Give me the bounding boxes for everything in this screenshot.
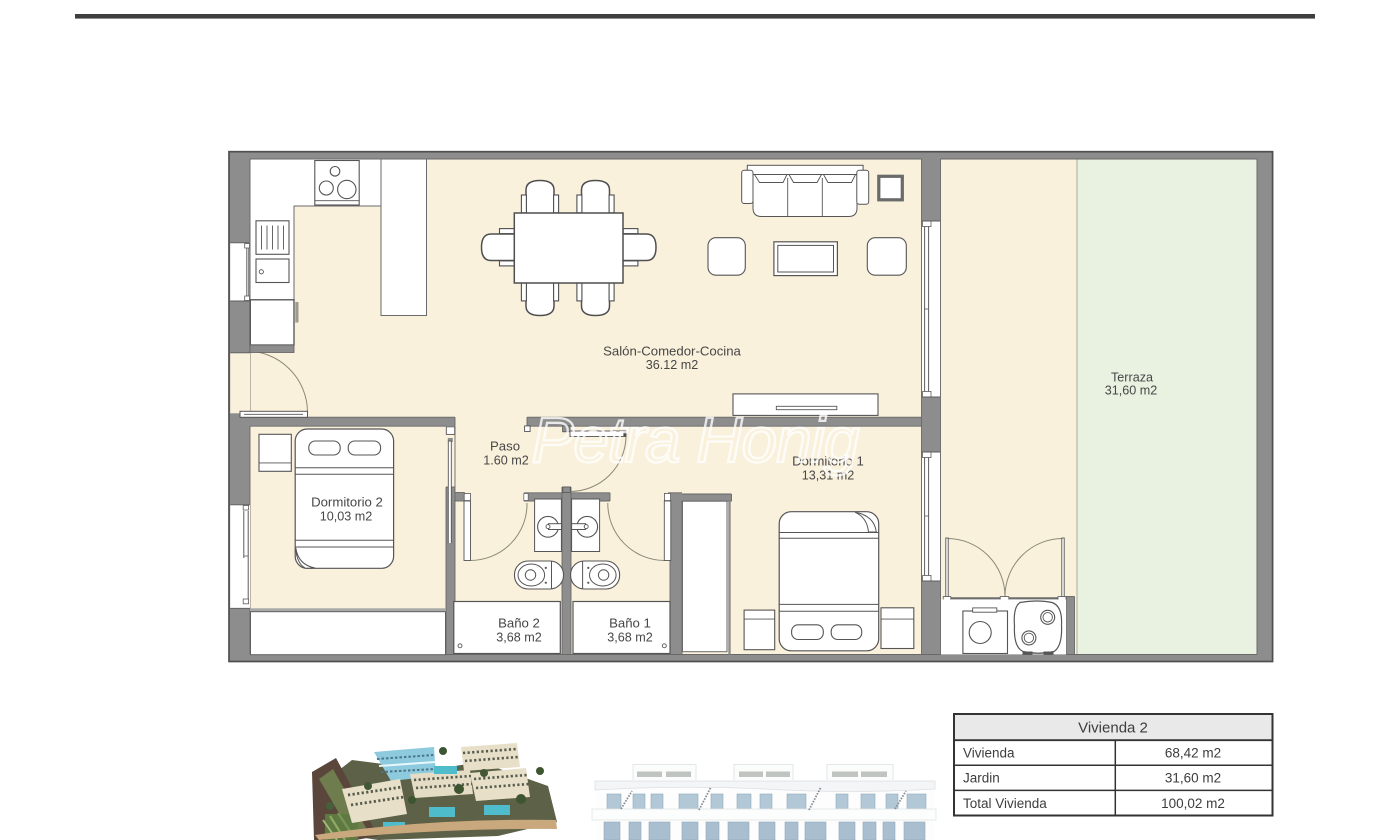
svg-text:3,68 m2: 3,68 m2 xyxy=(496,631,542,645)
svg-text:100,02 m2: 100,02 m2 xyxy=(1161,796,1225,811)
svg-text:36.12 m2: 36.12 m2 xyxy=(646,358,699,372)
svg-text:Jardin: Jardin xyxy=(963,771,1000,786)
svg-text:Vivienda 2: Vivienda 2 xyxy=(1078,720,1148,737)
svg-text:Petra Honig: Petra Honig xyxy=(532,404,860,476)
svg-text:Vivienda: Vivienda xyxy=(963,746,1015,761)
svg-text:10,03 m2: 10,03 m2 xyxy=(320,510,373,524)
svg-text:Dormitorio 2: Dormitorio 2 xyxy=(311,495,383,510)
svg-text:Baño 1: Baño 1 xyxy=(609,616,651,631)
svg-text:3,68 m2: 3,68 m2 xyxy=(607,631,653,645)
svg-text:31,60 m2: 31,60 m2 xyxy=(1165,771,1221,786)
svg-text:Terraza: Terraza xyxy=(1111,371,1153,385)
svg-text:Total Vivienda: Total Vivienda xyxy=(963,796,1047,811)
svg-text:68,42 m2: 68,42 m2 xyxy=(1165,746,1221,761)
svg-text:Baño 2: Baño 2 xyxy=(498,616,540,631)
svg-text:31,60 m2: 31,60 m2 xyxy=(1105,384,1158,398)
svg-text:Salón-Comedor-Cocina: Salón-Comedor-Cocina xyxy=(603,344,741,359)
svg-text:Paso: Paso xyxy=(490,439,520,454)
svg-text:1.60 m2: 1.60 m2 xyxy=(483,454,529,468)
